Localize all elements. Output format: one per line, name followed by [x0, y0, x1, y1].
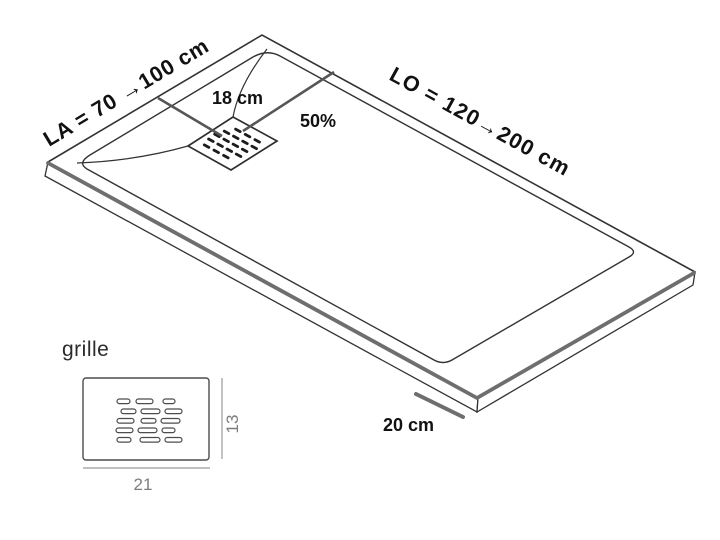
grille-detail-title: grille — [62, 338, 109, 361]
shower-tray-dimension-diagram: LA = 70 →100 cm LO = 120→200 cm 18 cm 50… — [0, 0, 720, 540]
label-slope-percent: 50% — [300, 111, 336, 131]
grille-detail: grille 21 13 — [62, 338, 242, 494]
label-edge-dimension: 20 cm — [383, 415, 434, 435]
label-drain-distance: 18 cm — [212, 88, 263, 108]
grille-width-value: 21 — [134, 475, 153, 494]
diagram-svg: LA = 70 →100 cm LO = 120→200 cm 18 cm 50… — [0, 0, 720, 540]
grille-height-value: 13 — [223, 415, 242, 434]
